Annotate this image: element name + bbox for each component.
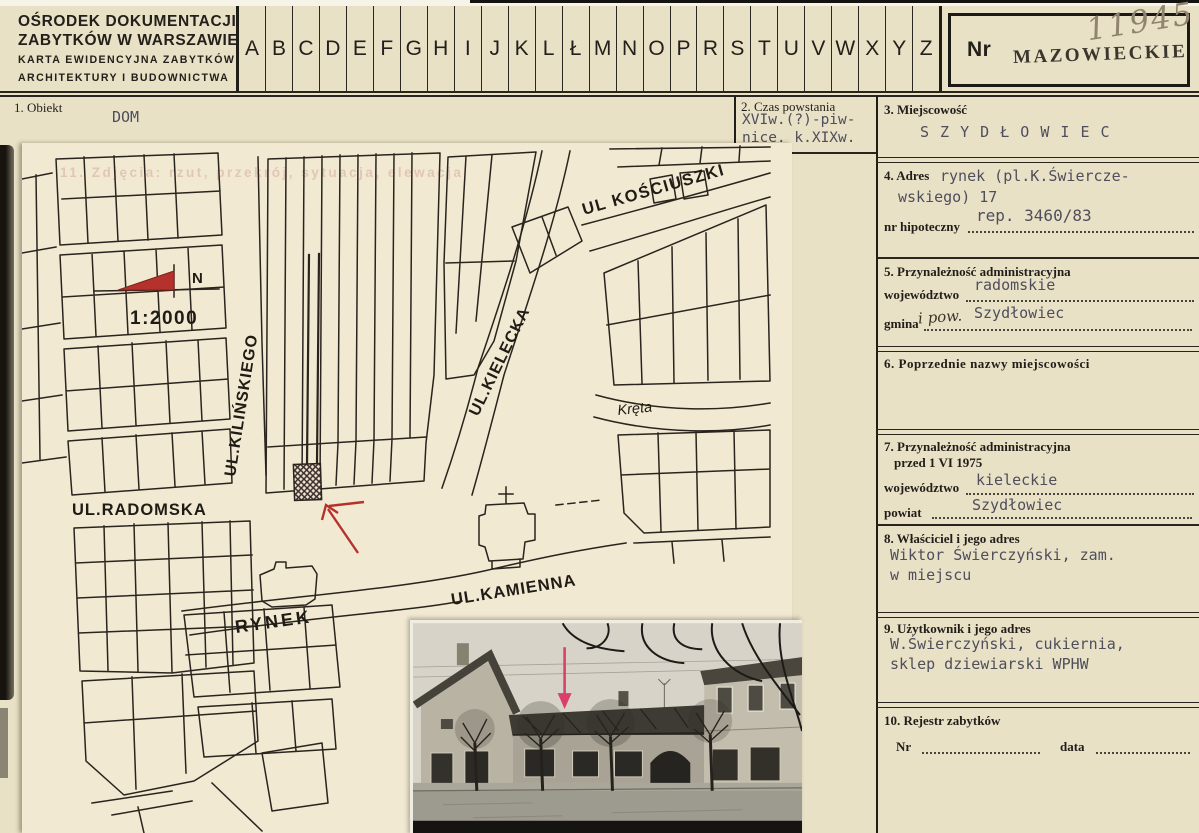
alphabet-letter: E [347,6,374,91]
record-card: OŚRODEK DOKUMENTACJI ZABYTKÓW W WARSZAWI… [0,0,1199,833]
section-przynaleznosc: 5. Przynależność administracyjna radomsk… [878,260,1196,346]
alphabet-letter: C [293,6,320,91]
alphabet-letter: L [536,6,563,91]
field-miejscowosc-value: S Z Y D Ł O W I E C [920,123,1111,141]
field-adres-value-1: rynek (pl.K.Świercze- [940,167,1130,185]
street-label-radomska: UL.RADOMSKA [72,501,207,519]
alphabet-letter: B [266,6,293,91]
header-divider-right [939,6,942,92]
alphabet-letter: X [859,6,886,91]
alphabet-letter: O [644,6,671,91]
section-uzytkownik: 9. Użytkownik i jego adres W.Świerczyńsk… [878,618,1196,702]
section-wlasciciel: 8. Właściciel i jego adres Wiktor Świerc… [878,527,1196,612]
alphabet-letter: G [401,6,428,91]
field-hipoteczny-label: nr hipoteczny [884,219,960,235]
nr-label: Nr [967,38,991,62]
header-divider-left [236,6,239,92]
street-label-kamienna: UL.KAMIENNA [450,571,578,609]
scan-edge-top-dark [470,0,1199,3]
alphabet-letter: H [428,6,455,91]
field-rejestr-label: 10. Rejestr zabytków [884,713,1000,729]
alphabet-letter: P [671,6,698,91]
street-label-kosciuszki: UL KOŚCIUSZKI [580,160,727,219]
field-poprzednie-label: 6. Poprzednie nazwy miejscowości [884,356,1090,372]
street-label-kreta: Kręta [617,399,653,419]
alphabet-letter: T [751,6,778,91]
site-photo-image [413,623,802,833]
field-gmina-label: gmina [884,316,919,332]
alphabet-letter: S [724,6,751,91]
north-label: N [192,270,203,287]
rule [876,257,1199,259]
section-miejscowosc: 3. Miejscowość S Z Y D Ł O W I E C [878,97,1196,157]
field-adres-value-2: wskiego) 17 [898,188,997,206]
field-miejscowosc-label: 3. Miejscowość [884,102,967,118]
field-rejestr-nr-label: Nr [896,739,911,755]
alphabet-letter: D [320,6,347,91]
dotted-line [932,517,1192,519]
institution-name: OŚRODEK DOKUMENTACJI [18,12,233,31]
section-rejestr: 10. Rejestr zabytków Nr data [878,708,1196,828]
alphabet-letter: Ł [563,6,590,91]
site-photo [410,620,802,833]
field-obiekt-value: DOM [112,108,139,126]
field-adres-label: 4. Adres [884,168,929,184]
alphabet-letter: N [617,6,644,91]
field-hipoteczny-value: rep. 3460/83 [976,206,1092,225]
alphabet-letter: M [590,6,617,91]
card-type-2: ARCHITEKTURY I BUDOWNICTWA [18,71,233,86]
field-wojewodztwo-1975-value: kieleckie [976,471,1057,489]
section-adres: 4. Adres rynek (pl.K.Świercze- wskiego) … [878,163,1196,256]
field-gmina-value: Szydłowiec [974,304,1064,322]
institution-block: OŚRODEK DOKUMENTACJI ZABYTKÓW W WARSZAWI… [18,12,233,85]
alphabet-letter: I [455,6,482,91]
dotted-line [1096,752,1190,754]
rule [0,91,1199,93]
field-admin1975-label-2: przed 1 VI 1975 [894,455,982,471]
dotted-line [966,493,1194,495]
subject-building-hatched [293,464,321,501]
field-wojewodztwo-1975-label: województwo [884,480,959,496]
alphabet-letter: Z [913,6,939,91]
field-czas-value-1: XVIw.(?)-piw- [742,112,856,128]
alphabet-letter: V [805,6,832,91]
field-wojewodztwo-value: radomskie [974,276,1055,294]
card-type: KARTA EWIDENCYJNA ZABYTKÓW [18,53,233,68]
map-locator-arrow [322,502,364,553]
field-admin1975-label: 7. Przynależność administracyjna [884,439,1071,455]
field-gmina-handwritten: i pow. [917,306,962,327]
dotted-line [924,329,1192,331]
alphabet-letter: J [482,6,509,91]
north-arrow-icon [118,271,174,290]
field-powiat-value: Szydłowiec [972,496,1062,514]
rule [876,524,1199,526]
field-rejestr-data-label: data [1060,739,1085,755]
map-scale: 1:2000 [130,308,198,329]
field-uzytkownik-value-2: sklep dziewiarski WPHW [890,655,1089,673]
alphabet-letter: A [239,6,266,91]
alphabet-letter: R [697,6,724,91]
scan-edge-left [0,145,14,700]
ghost-field-label: 11. Zdjęcia: rzut, przekrój, sytuacja, e… [60,165,463,180]
alphabet-strip: ABCDEFGHIJKLŁMNOPRSTUVWXYZ [239,6,939,91]
institution-name-2: ZABYTKÓW W WARSZAWIE [18,31,233,50]
section-przynaleznosc-1975: 7. Przynależność administracyjna przed 1… [878,435,1196,523]
dotted-line [922,752,1040,754]
field-powiat-label: powiat [884,505,922,521]
section-poprzednie-nazwy: 6. Poprzednie nazwy miejscowości [878,352,1196,428]
field-uzytkownik-value-1: W.Świerczyński, cukiernia, [890,635,1125,653]
field-wlasciciel-value-2: w miejscu [890,566,971,584]
alphabet-letter: F [374,6,401,91]
scan-edge-left-lower [0,708,8,778]
alphabet-letter: U [778,6,805,91]
alphabet-letter: W [832,6,859,91]
dotted-line [966,300,1194,302]
alphabet-letter: Y [886,6,913,91]
field-wlasciciel-label: 8. Właściciel i jego adres [884,531,1020,547]
field-wojewodztwo-label: województwo [884,287,959,303]
dotted-line [968,231,1194,233]
alphabet-letter: K [509,6,536,91]
field-obiekt-label: 1. Obiekt [14,100,62,116]
field-wlasciciel-value-1: Wiktor Świerczyński, zam. [890,546,1116,564]
